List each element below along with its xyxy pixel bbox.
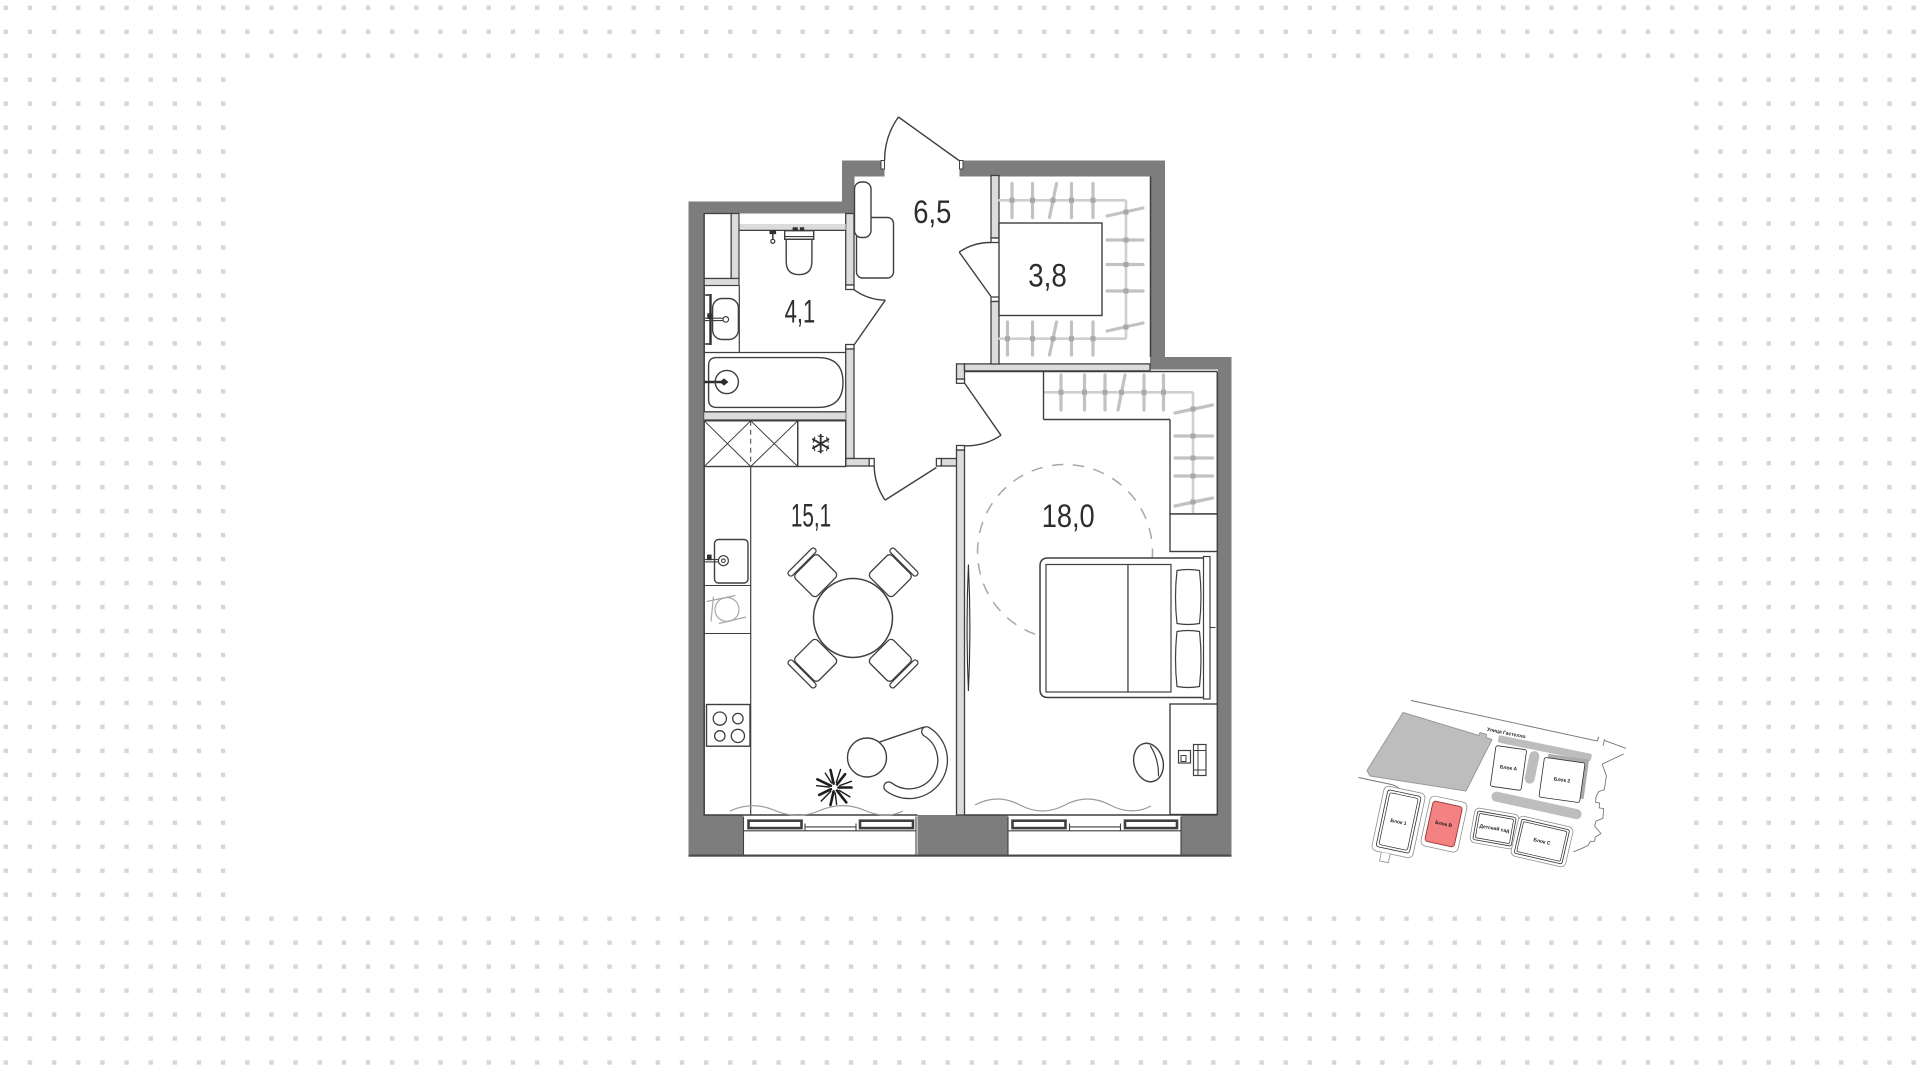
svg-text:6,5: 6,5 xyxy=(913,194,951,230)
svg-text:15,1: 15,1 xyxy=(791,498,831,534)
svg-text:4,1: 4,1 xyxy=(785,293,816,329)
svg-text:18,0: 18,0 xyxy=(1042,498,1095,534)
svg-text:3,8: 3,8 xyxy=(1028,258,1067,294)
